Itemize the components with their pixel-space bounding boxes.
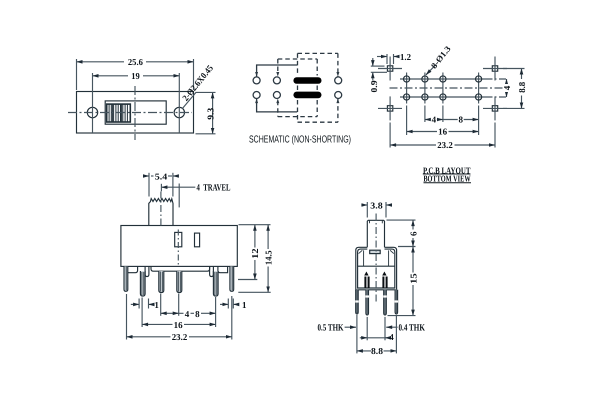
svg-text:4: 4 [185, 309, 190, 319]
svg-text:1: 1 [154, 300, 159, 310]
svg-text:15: 15 [408, 273, 418, 284]
svg-text:23.2: 23.2 [172, 332, 188, 342]
svg-text:SCHEMATIC (NON-SHORTING): SCHEMATIC (NON-SHORTING) [249, 134, 351, 145]
svg-text:4: 4 [389, 332, 394, 342]
svg-text:8: 8 [458, 115, 463, 125]
svg-text:12: 12 [250, 248, 260, 259]
svg-text:25.6: 25.6 [128, 57, 143, 67]
svg-text:9.3: 9.3 [205, 107, 215, 120]
svg-text:16: 16 [438, 127, 448, 137]
svg-text:4 TRAVEL: 4 TRAVEL [197, 184, 231, 194]
svg-text:8-Ø1.3: 8-Ø1.3 [429, 44, 453, 71]
svg-text:4: 4 [502, 85, 512, 90]
svg-text:0.9: 0.9 [369, 80, 379, 93]
svg-text:0.4 THK: 0.4 THK [399, 323, 426, 333]
svg-text:23.2: 23.2 [437, 140, 453, 150]
svg-text:8: 8 [195, 309, 200, 319]
svg-text:6: 6 [408, 231, 418, 236]
svg-text:16: 16 [174, 320, 184, 330]
svg-text:BOTTOM VIEW: BOTTOM VIEW [423, 174, 470, 184]
svg-text:5.4: 5.4 [155, 171, 168, 181]
svg-text:19: 19 [131, 71, 140, 81]
svg-text:14.5: 14.5 [263, 250, 273, 265]
svg-text:1.2: 1.2 [400, 52, 411, 62]
svg-text:0.5 THK: 0.5 THK [318, 323, 344, 333]
svg-text:2-Ø2.6X0.45: 2-Ø2.6X0.45 [180, 63, 215, 103]
svg-text:3.8: 3.8 [370, 200, 383, 210]
svg-text:8.8: 8.8 [517, 81, 527, 92]
svg-text:4: 4 [432, 115, 437, 125]
svg-text:8.8: 8.8 [371, 346, 384, 356]
svg-text:1: 1 [242, 300, 247, 310]
